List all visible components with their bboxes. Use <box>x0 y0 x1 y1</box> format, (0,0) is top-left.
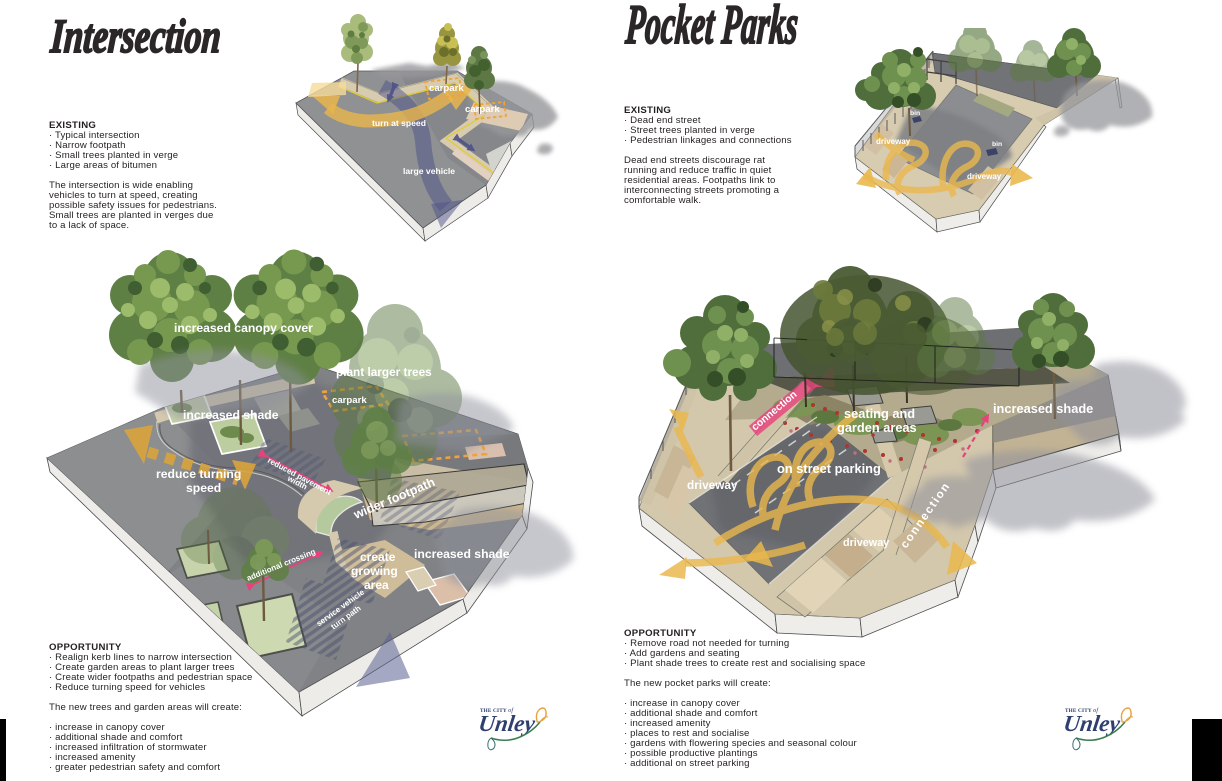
svg-text:Intersection: Intersection <box>48 10 222 63</box>
svg-text:bin: bin <box>992 141 1002 148</box>
svg-text:large vehicle: large vehicle <box>403 166 455 176</box>
svg-text:reduce turning: reduce turning <box>156 467 241 481</box>
svg-text:seating and: seating and <box>844 406 915 421</box>
svg-text:increased shade: increased shade <box>414 547 510 561</box>
svg-text:driveway: driveway <box>876 137 911 146</box>
svg-text:increased shade: increased shade <box>993 401 1093 416</box>
svg-text:plant larger trees: plant larger trees <box>336 365 432 379</box>
svg-text:turn at speed: turn at speed <box>372 118 426 128</box>
svg-text:Pocket Parks: Pocket Parks <box>623 0 800 54</box>
svg-text:driveway: driveway <box>967 172 1002 181</box>
svg-text:carpark: carpark <box>465 104 500 115</box>
svg-text:create: create <box>360 550 396 564</box>
svg-text:increased canopy cover: increased canopy cover <box>174 321 313 335</box>
svg-text:bin: bin <box>910 110 920 117</box>
svg-text:speed: speed <box>186 481 221 495</box>
svg-text:on street parking: on street parking <box>777 461 881 476</box>
svg-text:increased shade: increased shade <box>183 408 279 422</box>
svg-text:driveway: driveway <box>843 537 889 549</box>
svg-text:growing: growing <box>351 564 398 578</box>
svg-text:garden areas: garden areas <box>837 420 917 435</box>
svg-text:carpark: carpark <box>429 83 464 94</box>
svg-text:driveway: driveway <box>687 478 738 492</box>
svg-text:carpark: carpark <box>332 395 367 406</box>
svg-text:area: area <box>364 578 389 592</box>
